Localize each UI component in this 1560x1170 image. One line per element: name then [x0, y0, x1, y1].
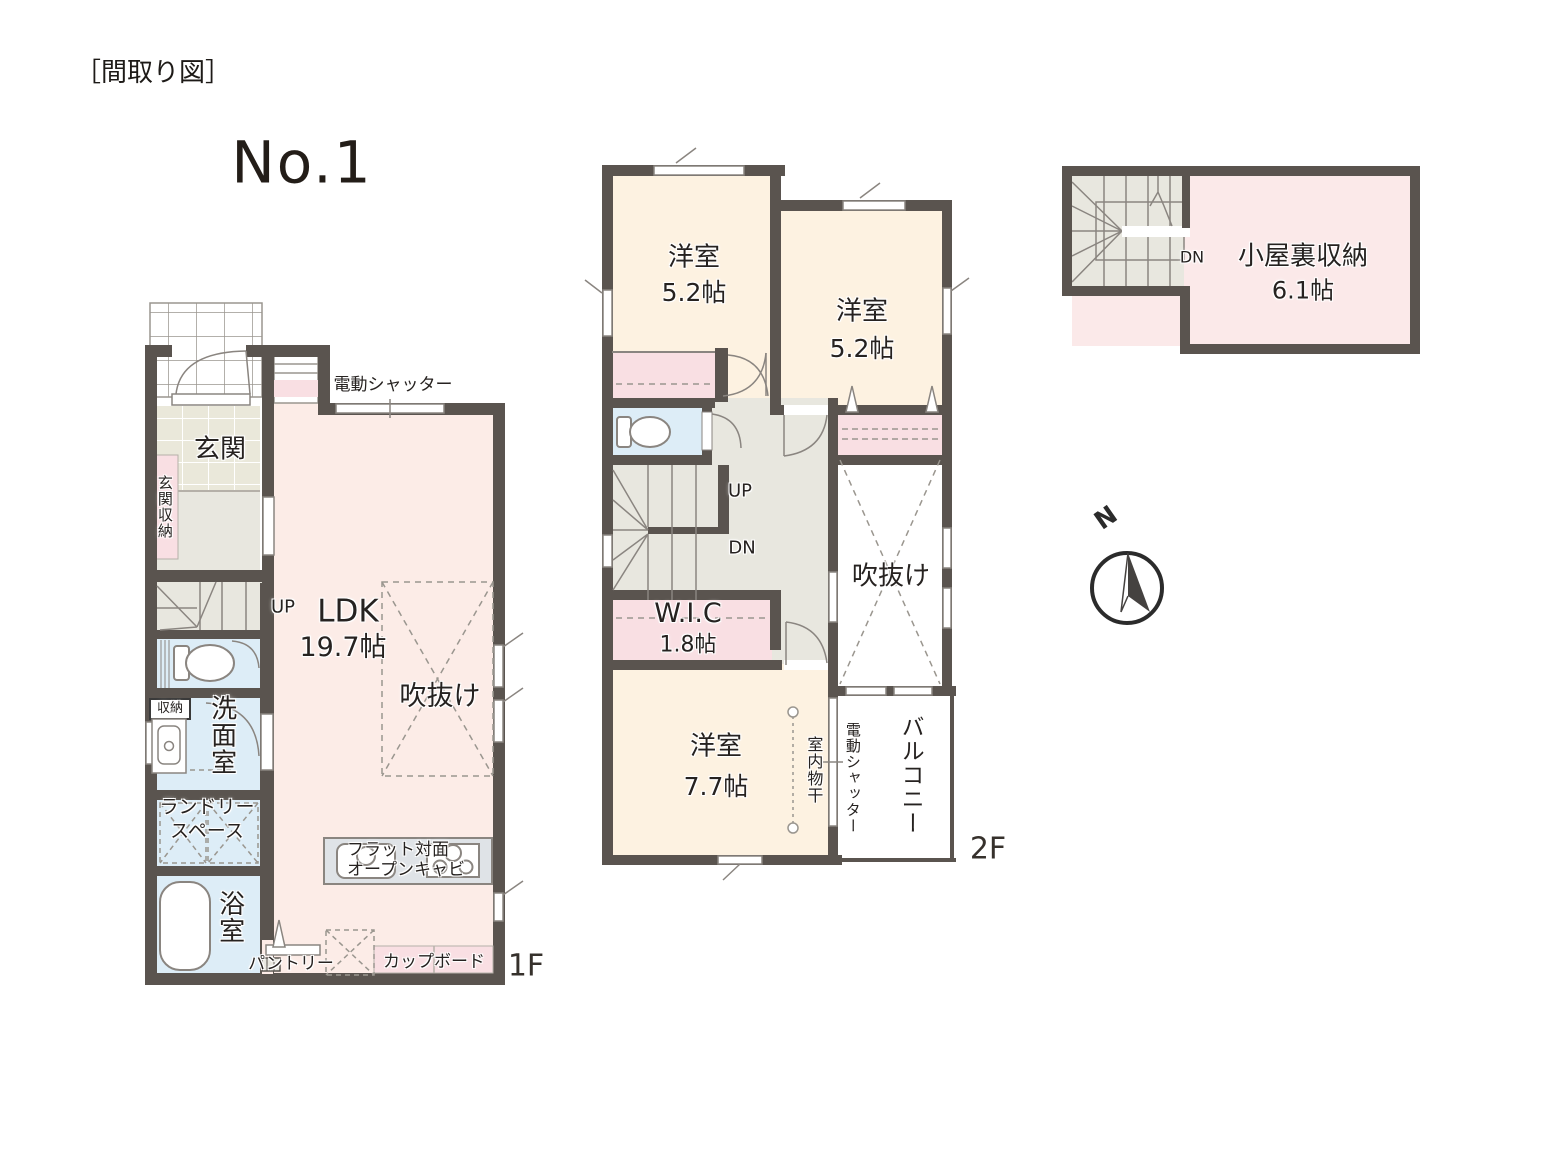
- label-storage-1f: 収納: [157, 702, 183, 716]
- label-pantry: パントリー: [248, 956, 334, 974]
- label-washroom: 洗面室: [207, 695, 234, 776]
- label-shutter-2f: 電動シャッター: [844, 722, 860, 834]
- label-wic-size: 1.8帖: [660, 633, 717, 656]
- label-dn-attic: DN: [1180, 250, 1204, 267]
- label-indoor-drying: 室内物干: [805, 736, 822, 804]
- label-laundry-line2: スペース: [170, 822, 244, 842]
- label-bedroom1-name: 洋室: [668, 244, 720, 271]
- label-bedroom1-size: 5.2帖: [662, 280, 727, 306]
- label-floor-2f: 2F: [970, 833, 1006, 865]
- label-up-2f: UP: [728, 483, 752, 502]
- page-title: ［間取り図］: [75, 60, 231, 87]
- label-wic-name: W.I.C: [654, 600, 722, 628]
- label-dn-2f: DN: [728, 540, 755, 559]
- label-bathroom: 浴室: [215, 890, 242, 944]
- label-balcony: バルコニー: [898, 715, 922, 835]
- floorplan-page: { "title": "［間取り図］", "plan_number": "No.…: [0, 0, 1560, 1170]
- label-bedroom2-name: 洋室: [836, 298, 888, 325]
- label-laundry-line1: ランドリー: [159, 798, 254, 818]
- label-up-1f: UP: [271, 599, 295, 618]
- label-cupboard: カップボード: [383, 954, 485, 972]
- label-bedroom2-size: 5.2帖: [830, 336, 895, 362]
- label-ldk-size: 19.7帖: [299, 634, 386, 662]
- label-kitchen-note-line1: フラット対面: [347, 842, 449, 860]
- label-entrance: 玄関: [194, 436, 246, 463]
- label-entrance-storage: 玄関収納: [156, 475, 172, 539]
- label-ldk-name: LDK: [317, 596, 378, 629]
- compass-icon: [1092, 553, 1162, 623]
- label-shutter-1f: 電動シャッター: [334, 377, 453, 395]
- label-bedroom3-size: 7.7帖: [684, 774, 749, 800]
- label-bedroom3-name: 洋室: [690, 733, 742, 760]
- label-attic-size: 6.1帖: [1272, 278, 1334, 303]
- label-floor-1f: 1F: [508, 950, 544, 982]
- label-void-2f: 吹抜け: [852, 563, 930, 590]
- toilet-icon-2f: [617, 417, 670, 447]
- label-attic-name: 小屋裏収納: [1238, 243, 1368, 270]
- entrance-door: [172, 394, 250, 405]
- label-kitchen-note-line2: オープンキャビ: [347, 862, 465, 880]
- plan-number: No.1: [231, 133, 372, 194]
- label-void-1f: 吹抜け: [400, 683, 481, 711]
